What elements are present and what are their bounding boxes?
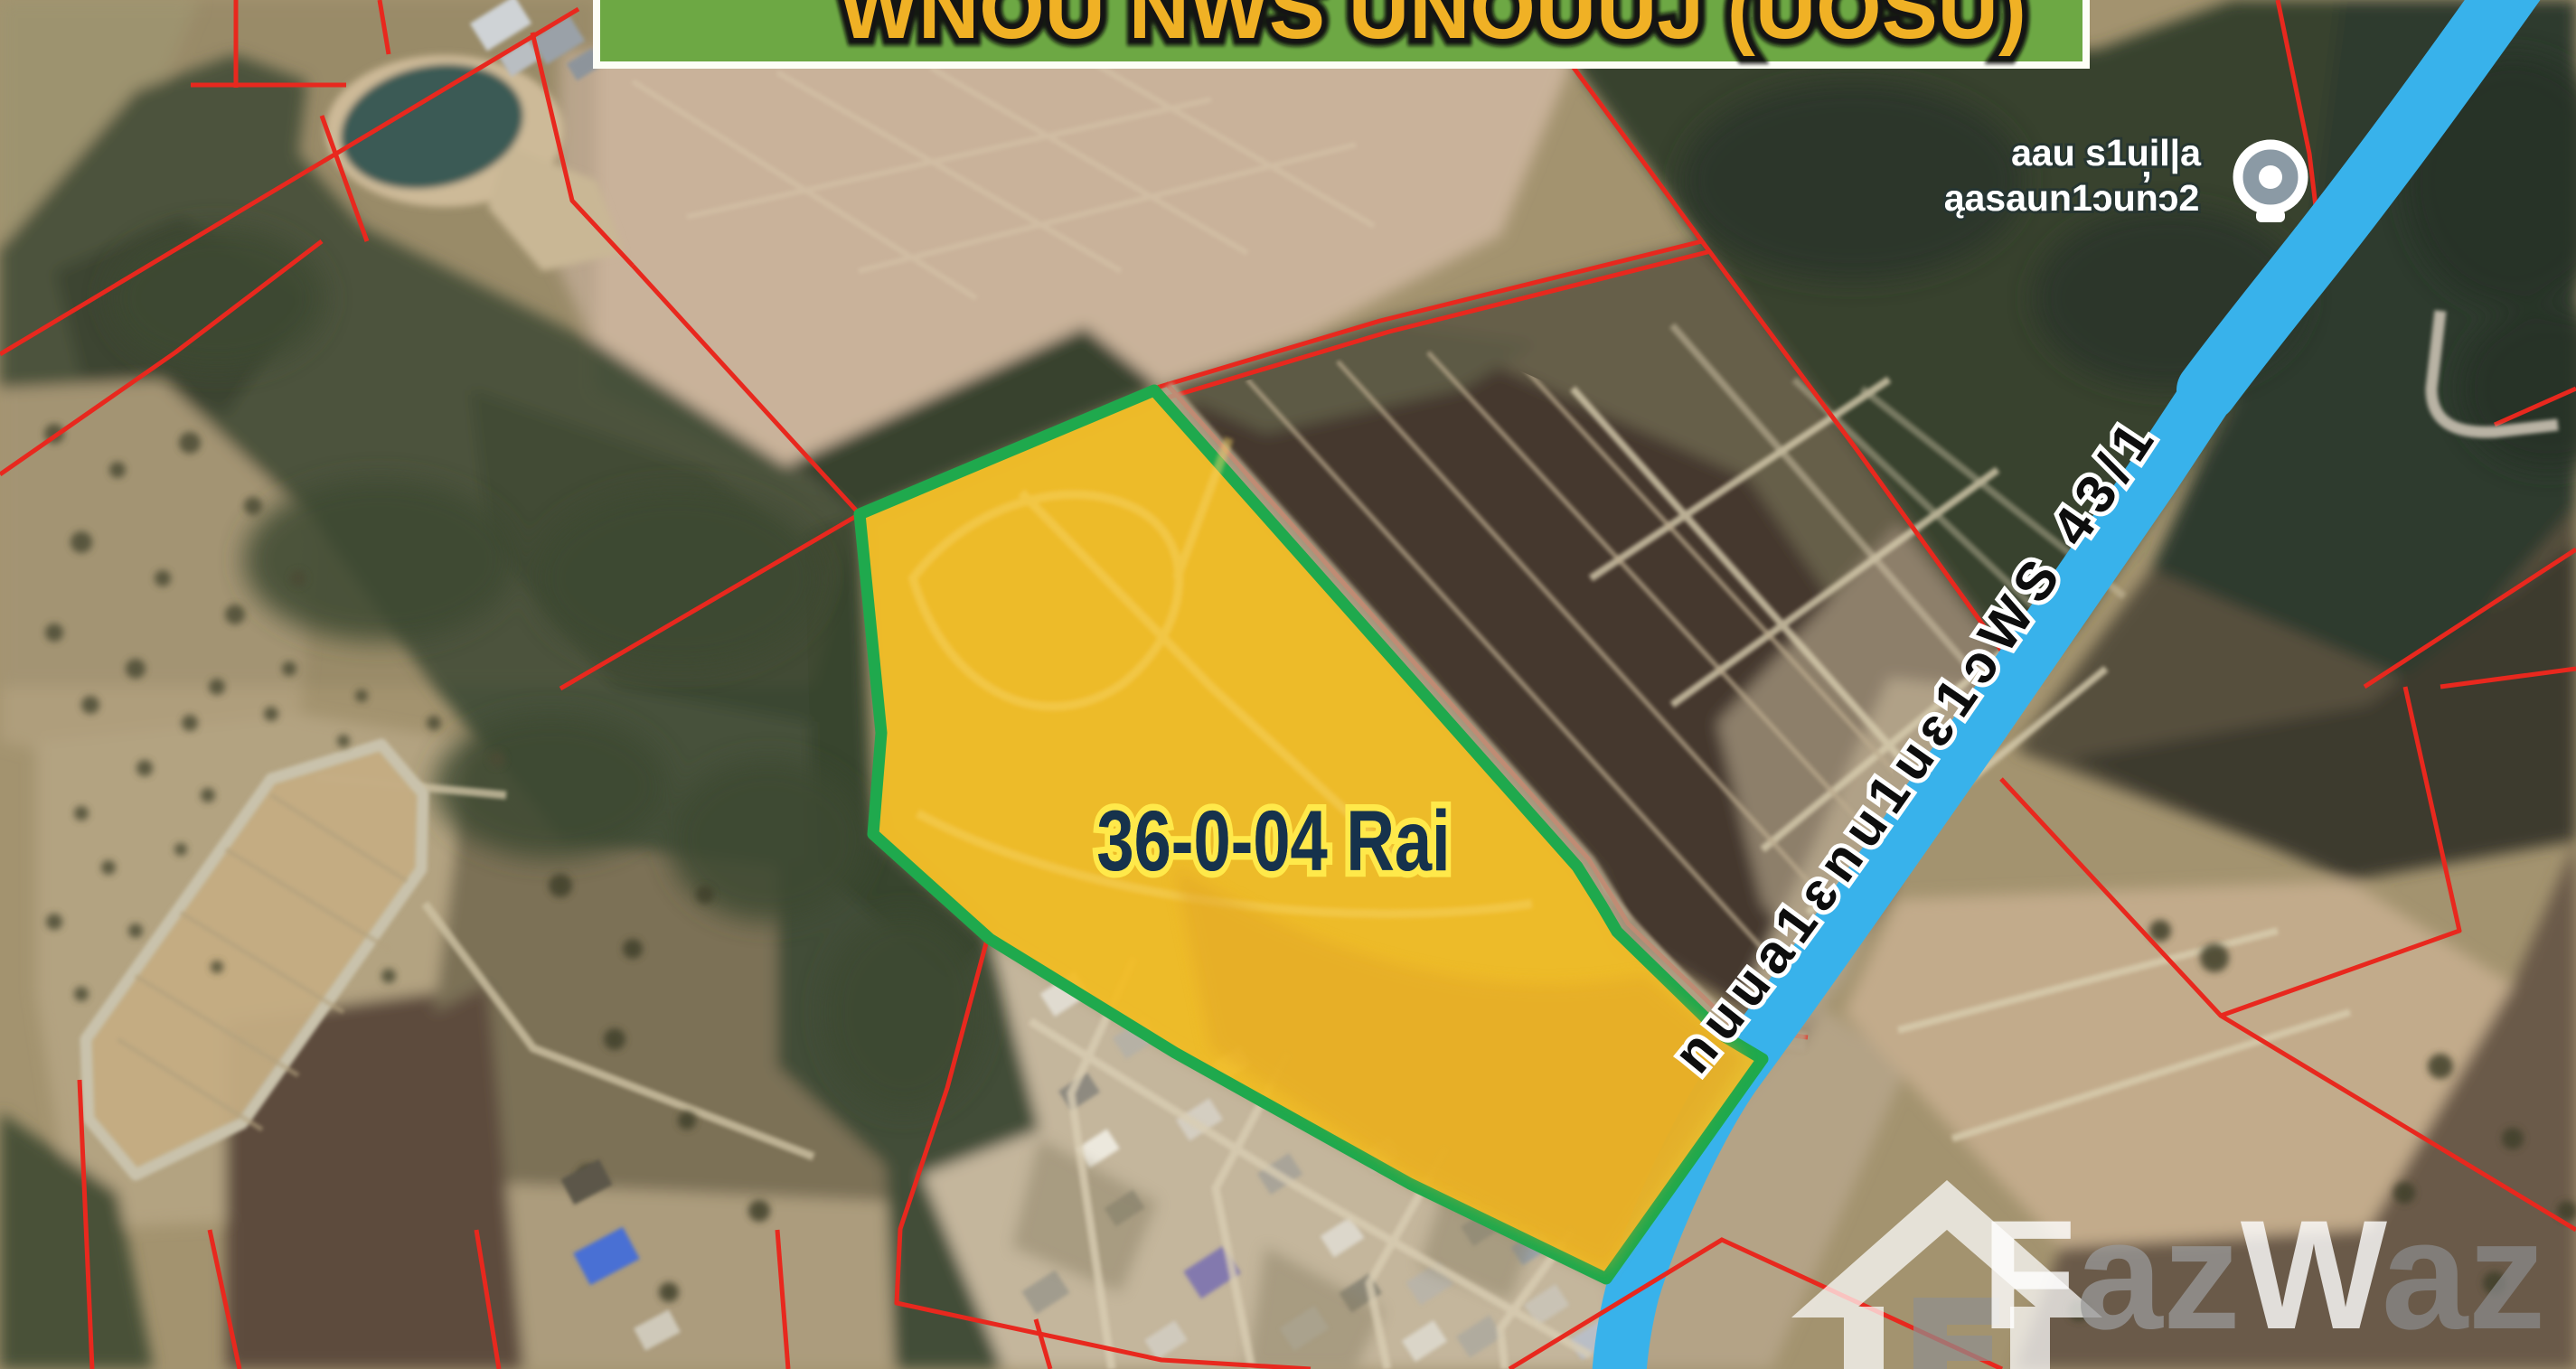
svg-text:aau s1uil|a: aau s1uil|a <box>2011 132 2202 173</box>
svg-text:FazWaz: FazWaz <box>1981 1188 2545 1362</box>
svg-text:ąasaun1ɔun̓ɔ2: ąasaun1ɔun̓ɔ2 <box>1944 172 2200 219</box>
svg-text:36-0-04 Rai: 36-0-04 Rai <box>1096 793 1450 889</box>
svg-text:WNOU NWS UNOUUJ (UOSU): WNOU NWS UNOUUJ (UOSU) <box>839 0 2026 57</box>
